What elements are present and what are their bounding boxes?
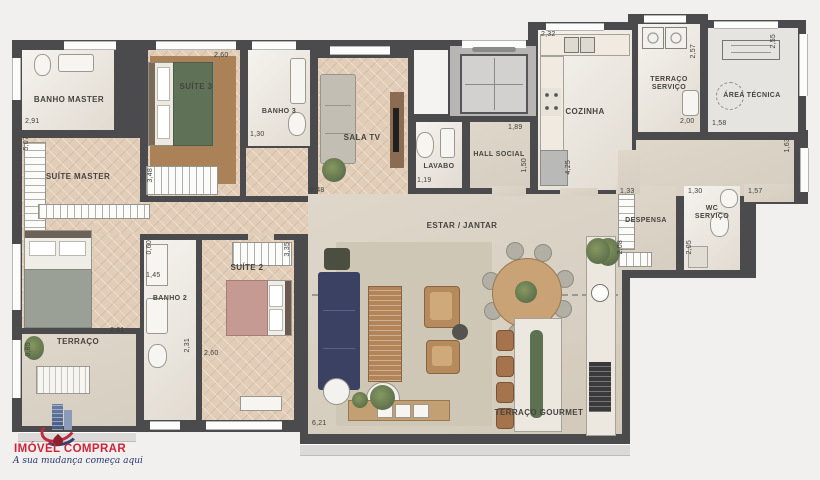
bench — [38, 204, 150, 219]
room-label-despensa: DESPENSA — [616, 217, 676, 225]
toilet — [34, 54, 51, 76]
dim-despensa-w: 1,33 — [620, 188, 634, 195]
cushion-line — [323, 348, 355, 349]
wardrobe — [146, 166, 218, 195]
refrigerator — [540, 150, 568, 186]
sofa — [320, 74, 356, 164]
logo-name: IMÓVEL COMPRAR — [14, 443, 126, 455]
dim-banho2-w: 1,45 — [146, 272, 160, 279]
dim-cozinha-h: 4,25 — [565, 160, 572, 174]
dim-estar-w: 8,48 — [310, 187, 324, 194]
room-label-banho-3: BANHO 3 — [248, 108, 310, 116]
washer-icon — [642, 27, 664, 49]
dim-suite2-w: 2,60 — [204, 350, 218, 357]
balcony-rail — [300, 444, 630, 456]
dim-despensa-h: 2,08 — [617, 240, 624, 254]
laundry-sink — [682, 90, 699, 116]
counter-sink-icon — [591, 284, 609, 302]
kitchen-sink-icon — [564, 37, 579, 53]
dim-terraco-h: 0,85 — [25, 342, 32, 356]
room-label-terraco-gourmet: TERRAÇO GOURMET — [468, 408, 610, 418]
equipment-line — [731, 45, 771, 46]
elevator-handle — [472, 47, 516, 52]
shaft — [414, 50, 448, 114]
cushion-line — [323, 310, 355, 311]
pillow — [269, 309, 283, 331]
doorway — [492, 186, 526, 196]
window — [64, 41, 116, 50]
armchair — [424, 286, 460, 328]
logo-tagline: A sua mudança começa aqui — [13, 456, 143, 466]
headboard — [285, 281, 291, 335]
dim-hall-w: 1,89 — [508, 124, 522, 131]
room-label-banho-2: BANHO 2 — [144, 295, 196, 303]
window — [800, 148, 809, 192]
elevator-door-line — [465, 84, 524, 85]
plant — [322, 158, 346, 182]
plant — [352, 392, 368, 408]
dim-suite-master-h: 5,07 — [23, 136, 30, 150]
armchair — [426, 340, 460, 374]
room-label-wc-servico: WC SERVIÇO — [690, 205, 734, 222]
dim-wc-w: 1,30 — [688, 188, 702, 195]
room-label-estar-jantar: ESTAR / JANTAR — [400, 221, 524, 231]
gourmet-chair — [496, 382, 514, 403]
window — [12, 340, 21, 398]
armchair-cushion — [432, 346, 452, 366]
elevator-icon — [460, 54, 528, 114]
room-label-suite-2: SUÍTE 2 — [210, 263, 284, 273]
dim-tservico-h: 2,57 — [690, 44, 697, 58]
bench — [240, 396, 282, 411]
room-label-suite-3: SUÍTE 3 — [158, 82, 234, 92]
dim-tservico-w: 2,00 — [680, 118, 694, 125]
dim-cozinha-w: 2,32 — [541, 31, 555, 38]
table-runner — [530, 330, 543, 418]
dim-banho3-w: 1,30 — [250, 131, 264, 138]
window — [206, 421, 282, 430]
room-label-terraco-servico: TERRAÇO SERVIÇO — [638, 76, 700, 93]
side-table — [323, 378, 350, 405]
wardrobe — [24, 142, 46, 236]
pillow — [29, 241, 56, 256]
dryer-icon — [665, 27, 687, 49]
grill-icon — [589, 362, 611, 412]
blanket — [24, 269, 92, 328]
lounger — [36, 366, 90, 394]
pillow — [157, 105, 170, 139]
dim-atecnica-h: 2,55 — [770, 34, 777, 48]
headboard — [149, 63, 155, 145]
window — [799, 34, 808, 96]
dim-banho-master-w: 2,91 — [25, 118, 39, 125]
vanity — [146, 298, 168, 334]
storage-box — [395, 404, 411, 418]
plant — [586, 238, 610, 264]
dim-suite3-w: 2,60 — [214, 52, 228, 59]
dim-wc-h: 2,05 — [686, 240, 693, 254]
dim-terraco-w: 2,61 — [110, 327, 124, 334]
armchair-cushion — [430, 292, 452, 320]
pillow — [59, 241, 86, 256]
toilet — [416, 132, 434, 158]
storage-box — [413, 404, 429, 418]
dim-hall-h: 1,50 — [521, 158, 528, 172]
bed — [226, 280, 292, 336]
plant — [370, 385, 395, 410]
bed — [24, 230, 92, 328]
dim-corr-right-h: 1,63 — [784, 138, 791, 152]
side-table — [452, 324, 468, 340]
dim-suite2-h: 3,35 — [284, 242, 291, 256]
dim-banho2-h: 2,31 — [184, 338, 191, 352]
pillow — [269, 285, 283, 307]
room-label-lavabo: LAVABO — [414, 163, 464, 171]
room-label-area-tecnica: ÁREA TÉCNICA — [722, 92, 782, 100]
cushion-line — [325, 105, 351, 106]
sofa — [318, 272, 360, 390]
window — [156, 41, 236, 50]
window — [714, 21, 778, 29]
equipment-line — [731, 52, 771, 53]
window — [252, 41, 296, 50]
doorway — [248, 234, 274, 242]
room-label-sala-tv: SALA TV — [318, 133, 406, 143]
accent-chair — [324, 248, 350, 270]
headboard — [25, 231, 91, 238]
vanity — [58, 54, 94, 72]
room-suite-3-vestibule — [246, 148, 308, 196]
dining-chair — [506, 242, 524, 260]
kitchen-sink-icon — [580, 37, 595, 53]
window — [644, 15, 686, 23]
room-label-terraco: TERRAÇO — [38, 337, 118, 347]
blanket — [226, 280, 268, 336]
bed — [148, 62, 214, 146]
dim-lavabo-w: 1,19 — [417, 177, 431, 184]
blanket — [173, 62, 213, 146]
room-label-cozinha: COZINHA — [538, 107, 632, 117]
gourmet-chair — [496, 356, 514, 377]
imovel-comprar-logo-icon — [40, 404, 80, 446]
room-label-suite-master: SUÍTE MASTER — [26, 172, 130, 182]
dim-gourmet-w: 6,21 — [312, 420, 326, 427]
doorway — [560, 188, 598, 196]
dim-corr-right-w: 1,57 — [748, 188, 762, 195]
tv — [393, 108, 399, 152]
dim-atecnica-w: 1,58 — [712, 120, 726, 127]
window — [330, 46, 390, 55]
window — [546, 23, 604, 31]
vanity — [440, 128, 455, 158]
window — [12, 58, 21, 100]
tv-panel — [390, 92, 404, 168]
window — [12, 244, 21, 310]
toilet — [148, 344, 167, 368]
vanity — [290, 58, 306, 104]
room-label-banho-master: BANHO MASTER — [24, 95, 114, 105]
console-slatted — [368, 286, 402, 382]
dim-suite3-wardrobe: 3,48 — [147, 168, 154, 182]
gourmet-chair — [496, 330, 514, 351]
table-centerpiece — [515, 281, 537, 303]
dim-banho2-niche: 0,60 — [146, 240, 153, 254]
